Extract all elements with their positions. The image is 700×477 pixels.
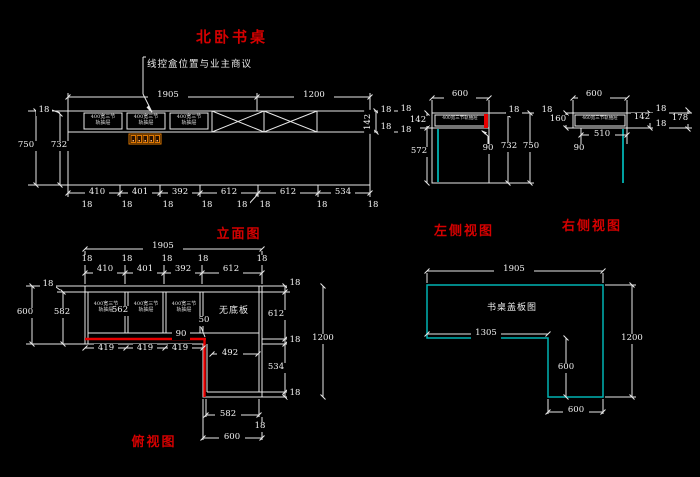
plan-dim-label: 400宽三节 轨抽屉: [89, 301, 123, 314]
plan-dim-label: 492: [217, 349, 243, 359]
elevation-linework: [28, 57, 398, 206]
cad-drawing-canvas: 北卧书桌 线控盒位置与业主商议: [0, 0, 700, 477]
plan-dim-label: 18: [254, 255, 270, 265]
plan-dim-label: 18: [79, 255, 95, 265]
elevation-dim-label: 18: [257, 201, 273, 211]
left-side-dim-label: 600: [444, 90, 476, 100]
left-side-dim-label: 732: [497, 142, 521, 152]
right-side-dim-label: 90: [570, 144, 588, 154]
elevation-dim-label: 18: [378, 106, 394, 116]
cover-board-dim-label: 1200: [618, 334, 646, 344]
plan-dim-label: 1200: [309, 334, 337, 344]
plan-dim-label: 90: [172, 330, 190, 340]
right-side-dim-label: 160: [548, 115, 568, 125]
cover-board-dim-label: 1905: [494, 265, 534, 275]
cover-board-dim-label: 1305: [471, 329, 501, 339]
right-side-dim-label: 178: [669, 114, 691, 124]
plan-dim-label: 50: [196, 316, 212, 326]
left-side-dim-label: 90: [479, 144, 497, 154]
left-side-dim-label: 750: [519, 142, 543, 152]
right-side-caption: 右侧视图: [561, 215, 623, 234]
elevation-dim-label: 1905: [148, 91, 188, 101]
plan-dim-label: 401: [133, 265, 157, 275]
right-side-dim-label: 460宽三节轨抽屉: [576, 116, 624, 121]
plan-dim-label: 1905: [143, 242, 183, 252]
right-side-dim-label: 18: [653, 120, 669, 130]
elevation-dim-label: 18: [79, 201, 95, 211]
plan-dim-label: 400宽三节 轨抽屉: [129, 301, 163, 314]
elevation-dim-label: 18: [365, 201, 381, 211]
left-side-caption: 左侧视图: [433, 220, 495, 239]
annotation-text: 线控盒位置与业主商议: [147, 56, 252, 70]
plan-dim-label: 419: [94, 344, 118, 354]
elevation-dim-label: 400宽三节 轨抽屉: [128, 114, 164, 127]
elevation-dim-label: 410: [85, 188, 109, 198]
elevation-dim-label: 18: [199, 201, 215, 211]
plan-dim-label: 18: [195, 255, 211, 265]
linework-svg: [0, 0, 700, 477]
plan-dim-label: 无底板: [212, 303, 256, 316]
plan-dim-label: 18: [159, 255, 175, 265]
plan-dim-label: 582: [215, 410, 241, 420]
elevation-dim-label: 732: [47, 141, 71, 151]
elevation-dim-label: 1200: [294, 91, 334, 101]
cover-board-dim-label: 600: [554, 363, 578, 373]
plan-dim-label: 612: [264, 310, 288, 320]
left-side-dim-label: 18: [398, 105, 414, 115]
plan-dim-label: 18: [119, 255, 135, 265]
elevation-dim-label: 18: [378, 123, 394, 133]
elevation-dim-label: 612: [276, 188, 300, 198]
plan-dim-label: 600: [13, 308, 37, 318]
left-side-dim-label: 18: [398, 126, 414, 136]
plan-dim-label: 419: [168, 344, 192, 354]
plan-dim-label: 18: [287, 389, 303, 399]
elevation-dim-label: 400宽三节 轨抽屉: [171, 114, 207, 127]
outlet-box: [129, 134, 161, 144]
plan-dim-label: 392: [171, 265, 195, 275]
plan-dim-label: 582: [50, 308, 74, 318]
elevation-dim-label: 18: [160, 201, 176, 211]
elevation-dim-label: 612: [217, 188, 241, 198]
cover-board-linework: [427, 271, 636, 414]
elevation-dim-label: 18: [119, 201, 135, 211]
elevation-dim-label: 750: [14, 141, 38, 151]
plan-dim-label: 600: [219, 433, 245, 443]
right-side-dim-label: 142: [631, 113, 653, 123]
elevation-dim-label: 18: [234, 201, 250, 211]
right-side-linework: [566, 98, 692, 183]
plan-dim-label: 410: [93, 265, 117, 275]
elevation-dim-label: 392: [168, 188, 192, 198]
elevation-dim-label: 142: [364, 110, 374, 134]
left-side-dim-label: 572: [407, 147, 431, 157]
right-side-dim-label: 510: [589, 130, 615, 140]
elevation-dim-label: 400宽三节 轨抽屉: [85, 114, 121, 127]
elevation-dim-label: 401: [128, 188, 152, 198]
plan-dim-label: 612: [219, 265, 243, 275]
cover-board-dim-label: 600: [563, 406, 589, 416]
plan-dim-label: 18: [40, 280, 56, 290]
left-side-dim-label: 18: [506, 106, 522, 116]
elevation-dim-label: 18: [314, 201, 330, 211]
elevation-dim-label: 534: [331, 188, 355, 198]
drawing-title: 北卧书桌: [196, 26, 268, 47]
plan-dim-label: 18: [287, 336, 303, 346]
plan-dim-label: 400宽三节 轨抽屉: [167, 301, 201, 314]
plan-dim-label: 419: [133, 344, 157, 354]
plan-dim-label: 18: [252, 422, 268, 432]
plan-caption: 俯视图: [129, 431, 179, 450]
plan-dim-label: 18: [287, 279, 303, 289]
right-side-dim-label: 18: [653, 105, 669, 115]
elevation-caption: 立面图: [213, 223, 265, 242]
right-side-dim-label: 600: [578, 90, 610, 100]
elevation-dim-label: 18: [36, 106, 52, 116]
plan-dim-label: 534: [264, 363, 288, 373]
left-side-dim-label: 400宽三节轨抽屉: [436, 116, 484, 121]
cover-board-label: 书桌盖板图: [483, 300, 541, 313]
